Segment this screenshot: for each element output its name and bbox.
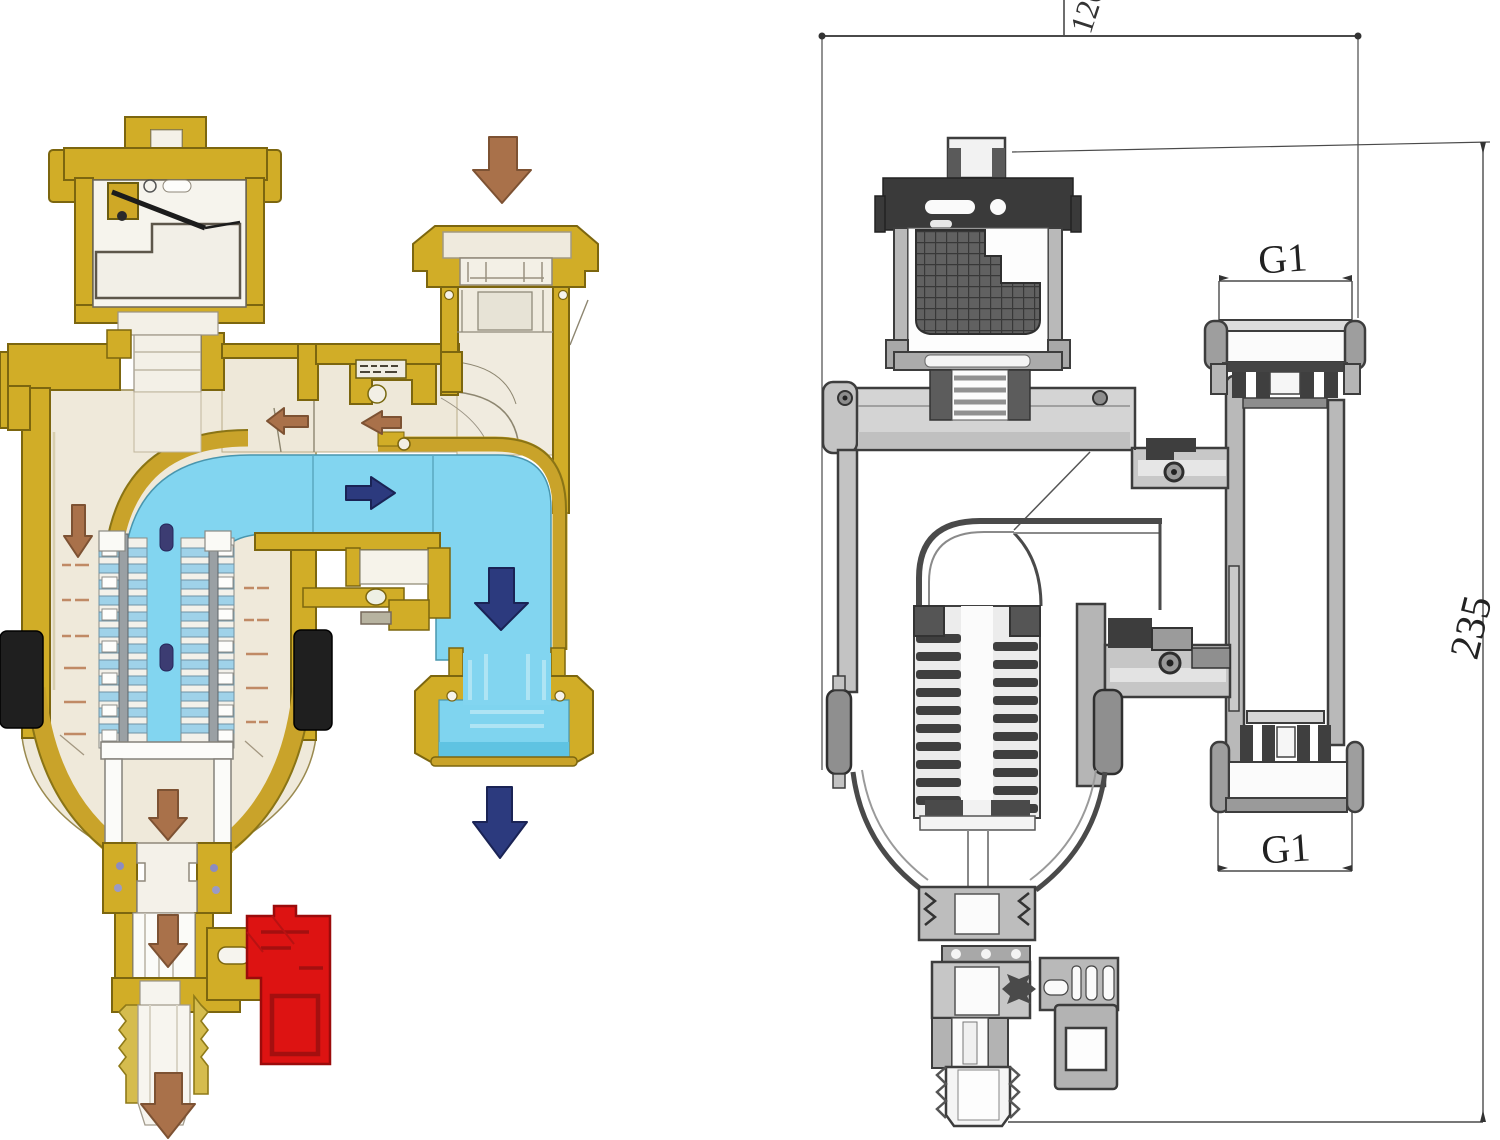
svg-text:G1: G1 [1257, 234, 1309, 282]
svg-text:G1: G1 [1260, 824, 1312, 872]
